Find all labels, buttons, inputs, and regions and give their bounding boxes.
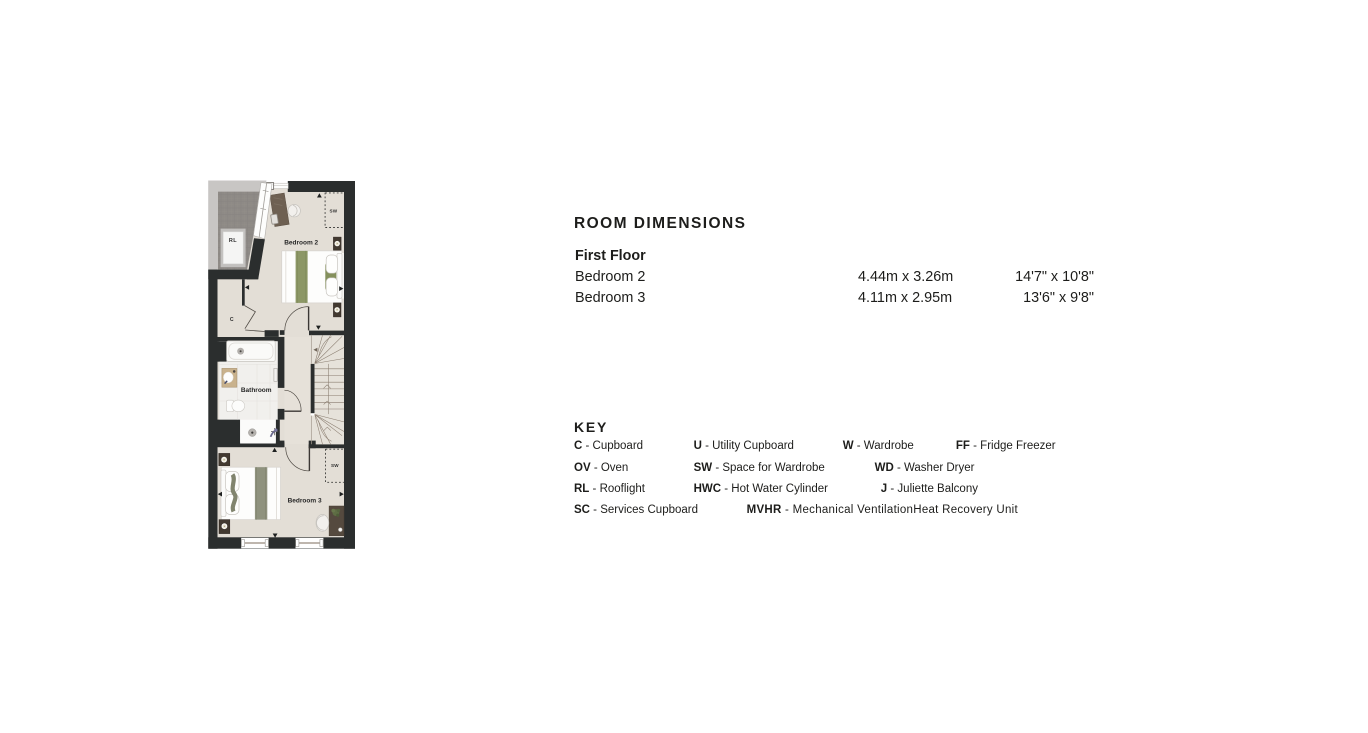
svg-text:RL: RL [229,238,237,244]
svg-text:SW: SW [331,463,339,468]
svg-text:C: C [230,317,234,323]
svg-text:Bedroom 2: Bedroom 2 [284,240,318,247]
svg-text:Bathroom: Bathroom [241,387,272,394]
svg-text:SW: SW [329,208,337,213]
svg-text:Bedroom 3: Bedroom 3 [288,498,322,505]
